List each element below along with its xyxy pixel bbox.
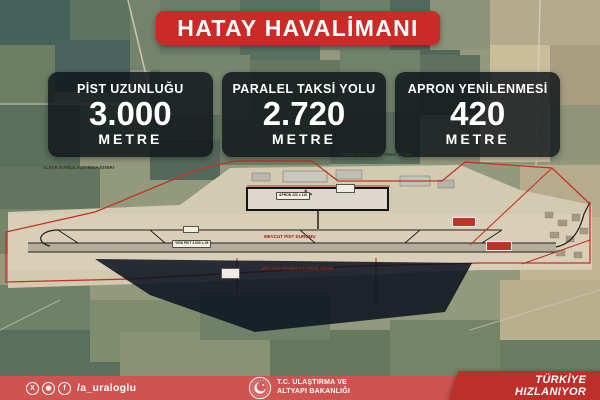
map-label-expropriation-left: İLAVE KAMULAŞTIRMA SINIRI	[44, 165, 114, 170]
ministry-name: T.C. ULAŞTIRMA VE ALTYAPI BAKANLIĞI	[277, 379, 350, 397]
instagram-icon[interactable]: ◉	[42, 382, 55, 395]
map-chip-apron: APRON 420 x 110	[276, 192, 310, 200]
ministry-emblem-icon	[248, 376, 272, 400]
stat-unit: METRE	[272, 131, 336, 147]
map-label-expropriation-right: İLAVE KAMULAŞTIRMA SINIRI	[342, 152, 412, 157]
map-marker-chip	[221, 268, 240, 279]
map-label-existing-boundary: MEVCUT KAMULAŞTIRMA SINIRI	[262, 266, 333, 271]
stat-value: 3.000	[89, 97, 172, 132]
page-title: HATAY HAVALİMANI	[177, 15, 418, 42]
map-marker-chip	[486, 241, 512, 251]
stat-label: PARALEL TAKSİ YOLU	[232, 82, 375, 96]
ministry-branding: T.C. ULAŞTIRMA VE ALTYAPI BAKANLIĞI	[248, 376, 350, 400]
social-links: X ◉ f	[26, 382, 71, 395]
stat-unit: METRE	[446, 131, 510, 147]
satellite-map	[0, 0, 600, 400]
stat-cards: PİST UZUNLUĞU 3.000 METRE PARALEL TAKSİ …	[48, 72, 560, 157]
map-marker-chip	[452, 217, 476, 227]
map-label-existing-runway: MEVCUT PİST DURUMU	[264, 234, 316, 239]
title-banner: HATAY HAVALİMANI	[156, 11, 440, 45]
ministry-line2: ALTYAPI BAKANLIĞI	[277, 388, 350, 397]
x-icon[interactable]: X	[26, 382, 39, 395]
stat-label: APRON YENİLENMESİ	[408, 82, 548, 96]
stat-label: PİST UZUNLUĞU	[77, 82, 184, 96]
stat-value: 420	[450, 97, 505, 132]
slogan-line2: HIZLANIYOR	[454, 386, 586, 398]
stat-value: 2.720	[263, 97, 346, 132]
stat-card-runway-length: PİST UZUNLUĞU 3.000 METRE	[48, 72, 213, 157]
stat-unit: METRE	[98, 131, 162, 147]
social-handle[interactable]: /a_uraloglu	[77, 382, 136, 394]
stat-card-parallel-taxiway: PARALEL TAKSİ YOLU 2.720 METRE	[222, 72, 387, 157]
slogan-block: TÜRKİYE HIZLANIYOR	[449, 371, 600, 400]
map-marker-chip	[183, 226, 199, 233]
slogan-text: TÜRKİYE HIZLANIYOR	[454, 371, 600, 398]
facebook-icon[interactable]: f	[58, 382, 71, 395]
slogan-line1: TÜRKİYE	[454, 374, 586, 386]
stat-card-apron-renewal: APRON YENİLENMESİ 420 METRE	[395, 72, 560, 157]
map-chip-new-runway: YENİ PİST 3.000 x 45	[172, 240, 211, 248]
ministry-line1: T.C. ULAŞTIRMA VE	[277, 379, 350, 388]
map-marker-chip	[336, 184, 355, 193]
